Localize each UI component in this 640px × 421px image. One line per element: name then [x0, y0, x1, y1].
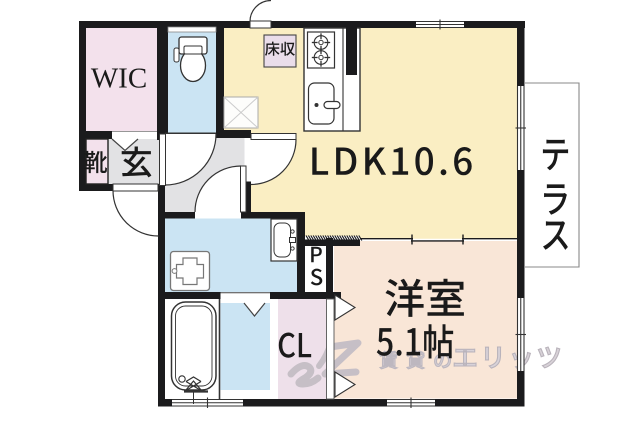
svg-text:WIC: WIC	[91, 63, 147, 95]
